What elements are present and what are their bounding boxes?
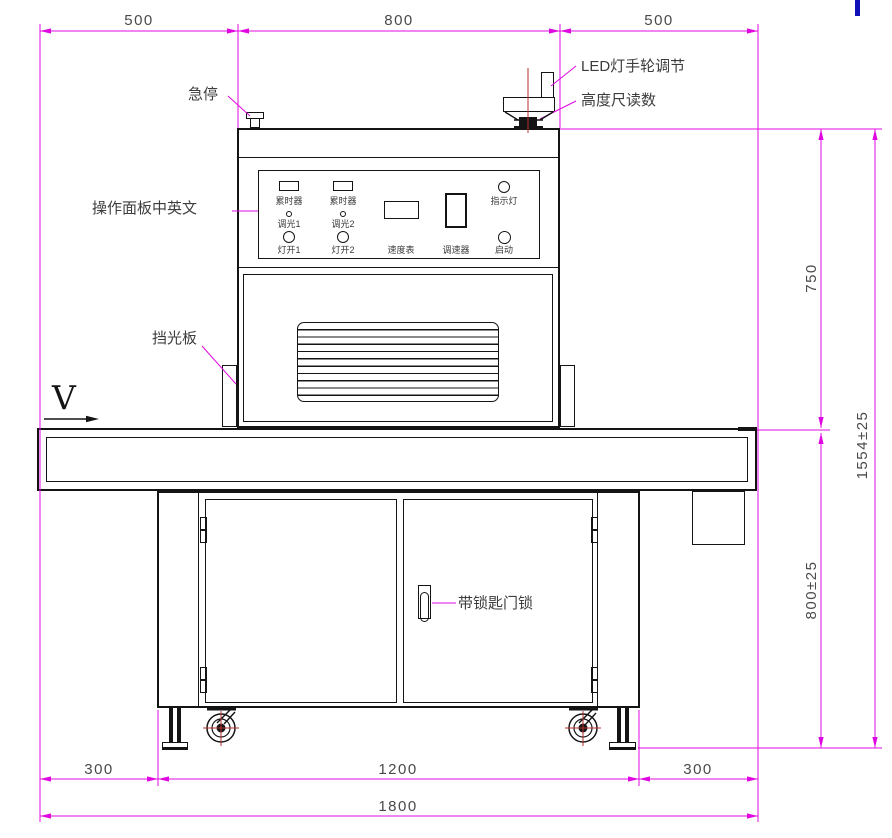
label-light-shield: 挡光板 xyxy=(152,330,197,347)
start-button xyxy=(498,231,511,244)
dim-right-lower: 800±25 xyxy=(804,550,820,630)
handwheel-knob xyxy=(541,72,554,98)
hinge-icon xyxy=(591,680,598,693)
conveyor-belt-inner xyxy=(46,437,748,482)
panel-label-dimmer1: 调光1 xyxy=(264,219,314,229)
door-lock-handle xyxy=(420,592,429,622)
leveling-foot-stem-right xyxy=(617,706,629,743)
dim-top-right: 500 xyxy=(624,13,694,29)
label-height-scale: 高度尺读数 xyxy=(581,92,656,109)
lamp-switch-1 xyxy=(283,231,295,243)
speed-controller-box xyxy=(445,193,467,228)
dim-bottom-left: 300 xyxy=(64,762,134,778)
engineering-drawing-canvas: 500 800 500 750 800±25 1554±25 300 1200 … xyxy=(0,0,892,838)
dim-right-overall: 1554±25 xyxy=(855,400,871,490)
handwheel-disc xyxy=(503,97,555,112)
hinge-icon xyxy=(200,667,207,680)
hinge-icon xyxy=(591,530,598,543)
leveling-foot-base-left xyxy=(162,742,188,750)
hinge-icon xyxy=(591,667,598,680)
panel-label-timer1: 累时器 xyxy=(264,196,314,206)
cabinet-left-stile-line xyxy=(198,491,199,708)
panel-label-lamp2: 灯开2 xyxy=(318,245,368,255)
dim-bottom-middle: 1200 xyxy=(363,762,433,778)
head-section-divider-line xyxy=(237,267,560,268)
indicator-lamp xyxy=(498,181,510,193)
label-door-lock: 带锁匙门锁 xyxy=(458,595,533,612)
head-top-strip-line xyxy=(237,157,560,158)
dim-bottom-overall: 1800 xyxy=(363,799,433,815)
corner-mark xyxy=(855,0,860,16)
light-shield-plate-right xyxy=(560,365,575,427)
leveling-foot-stem-left xyxy=(169,706,181,743)
panel-label-dimmer2: 调光2 xyxy=(318,219,368,229)
drive-motor-box xyxy=(692,491,745,545)
timer-display-2 xyxy=(333,181,353,191)
hinge-icon xyxy=(591,517,598,530)
hinge-icon xyxy=(200,530,207,543)
caster-wheel-left xyxy=(207,709,236,742)
panel-label-lamp1: 灯开1 xyxy=(264,245,314,255)
panel-label-start: 启动 xyxy=(479,245,529,255)
leveling-foot-base-right xyxy=(609,742,636,750)
dim-bottom-right: 300 xyxy=(663,762,733,778)
caster-wheel-right xyxy=(569,709,598,742)
cabinet-door-left xyxy=(205,499,397,703)
timer-display-1 xyxy=(279,181,299,191)
belt-end-roller-mark xyxy=(738,427,757,431)
dim-right-upper: 750 xyxy=(804,243,820,313)
dimmer-knob-2 xyxy=(340,211,346,217)
hinge-icon xyxy=(200,517,207,530)
dim-top-middle: 800 xyxy=(364,13,434,29)
panel-label-speed-meter: 速度表 xyxy=(376,245,426,255)
label-estop: 急停 xyxy=(148,86,218,103)
dimmer-knob-1 xyxy=(286,211,292,217)
panel-label-speed-controller: 调速器 xyxy=(431,245,481,255)
direction-letter: V xyxy=(52,378,76,417)
panel-label-indicator: 指示灯 xyxy=(479,196,529,206)
light-shield-plate-left xyxy=(222,365,237,427)
dim-top-left: 500 xyxy=(104,13,174,29)
label-led-handwheel: LED灯手轮调节 xyxy=(581,58,685,75)
estop-button-body xyxy=(250,118,260,128)
hinge-icon xyxy=(200,680,207,693)
height-scale-base-line xyxy=(514,126,543,128)
lamp-switch-2 xyxy=(337,231,349,243)
ventilation-louver xyxy=(297,322,499,402)
speed-meter-display xyxy=(384,201,419,219)
panel-label-timer2: 累时器 xyxy=(318,196,368,206)
label-control-panel: 操作面板中英文 xyxy=(92,200,197,217)
